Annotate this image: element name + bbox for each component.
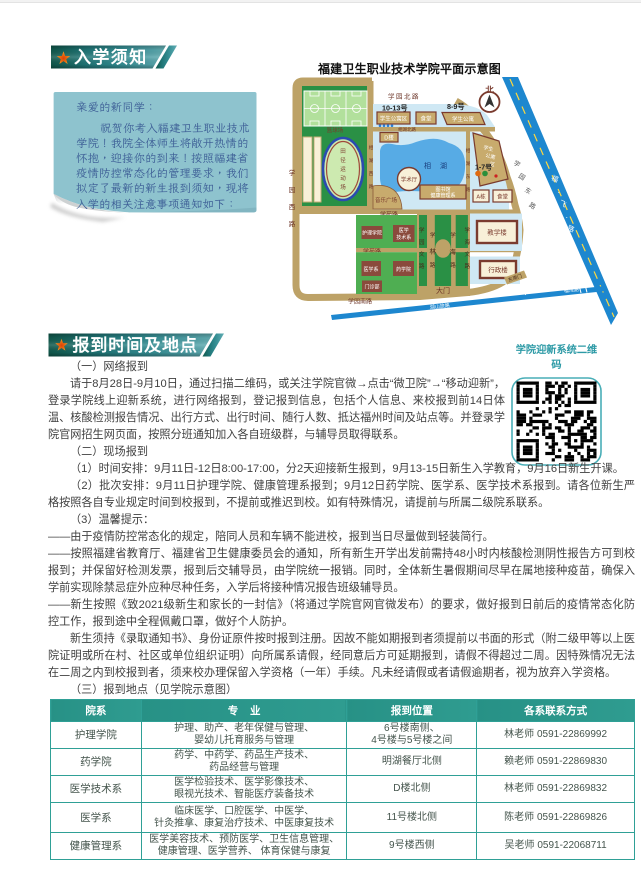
svg-text:报到时间及地点: 报到时间及地点 (73, 335, 198, 355)
svg-text:10-13号: 10-13号 (382, 104, 408, 113)
svg-text:园: 园 (289, 186, 296, 194)
svg-text:东: 东 (466, 173, 471, 179)
svg-text:学: 学 (465, 226, 471, 234)
svg-text:路: 路 (369, 183, 374, 190)
svg-text:音乐广场: 音乐广场 (375, 196, 398, 204)
svg-text:运: 运 (340, 165, 346, 173)
svg-text:路: 路 (527, 200, 538, 211)
svg-text:学生公寓: 学生公寓 (452, 115, 475, 123)
svg-text:学: 学 (512, 158, 523, 169)
svg-text:海: 海 (465, 238, 471, 246)
svg-text:路: 路 (466, 186, 471, 193)
svg-text:篮球场: 篮球场 (327, 126, 344, 134)
svg-text:1-7号: 1-7号 (475, 163, 492, 172)
svg-text:医学: 医学 (399, 227, 409, 234)
svg-text:相: 相 (424, 161, 431, 170)
svg-text:行政楼: 行政楼 (488, 265, 508, 274)
svg-text:路: 路 (430, 261, 436, 269)
svg-text:东: 东 (523, 185, 534, 196)
svg-text:入学须知: 入学须知 (74, 47, 148, 67)
svg-text:学: 学 (289, 168, 296, 177)
svg-text:园: 园 (517, 172, 527, 182)
svg-text:径: 径 (340, 156, 346, 164)
svg-text:D楼: D楼 (384, 134, 394, 142)
svg-text:医学系: 医学系 (363, 266, 378, 273)
svg-text:动: 动 (340, 175, 346, 182)
svg-text:食堂: 食堂 (497, 193, 509, 201)
svg-text:福建卫生职业技术学院平面示意图: 福建卫生职业技术学院平面示意图 (317, 61, 501, 76)
svg-text:学生公寓区: 学生公寓区 (380, 115, 408, 123)
svg-text:学: 学 (430, 231, 436, 239)
svg-text:林: 林 (430, 247, 437, 256)
svg-text:海: 海 (449, 247, 456, 256)
svg-text:A栋: A栋 (476, 193, 486, 201)
svg-text:路: 路 (450, 261, 456, 269)
svg-text:护理学院: 护理学院 (362, 230, 382, 237)
svg-text:文: 文 (419, 250, 425, 258)
svg-text:技术系: 技术系 (396, 234, 411, 241)
svg-text:药学院: 药学院 (396, 266, 411, 273)
svg-text:食堂: 食堂 (420, 115, 432, 123)
svg-text:门诊部: 门诊部 (364, 284, 379, 291)
svg-text:学: 学 (450, 231, 456, 239)
svg-text:学园南路: 学园南路 (348, 298, 372, 306)
svg-text:湖: 湖 (369, 157, 374, 164)
svg-text:大门: 大门 (436, 286, 450, 295)
svg-text:场: 场 (340, 183, 346, 191)
svg-text:路: 路 (465, 262, 471, 270)
svg-text:园: 园 (419, 239, 425, 246)
svg-text:图书馆: 图书馆 (435, 186, 450, 193)
svg-text:学: 学 (419, 226, 425, 234)
svg-text:西: 西 (289, 203, 296, 211)
svg-text:田: 田 (340, 148, 346, 155)
svg-text:文: 文 (465, 250, 471, 258)
svg-text:湖山旅路: 湖山旅路 (429, 302, 450, 311)
svg-text:教学楼: 教学楼 (487, 228, 507, 237)
svg-text:健康管理系: 健康管理系 (430, 192, 455, 199)
svg-text:8-9号: 8-9号 (447, 102, 465, 111)
svg-text:湖: 湖 (440, 161, 447, 170)
svg-text:湖: 湖 (466, 160, 471, 167)
svg-text:相: 相 (466, 147, 471, 154)
svg-text:相: 相 (369, 144, 374, 151)
svg-text:路: 路 (419, 262, 425, 270)
svg-text:路: 路 (289, 219, 296, 228)
svg-text:学术厅: 学术厅 (401, 176, 418, 184)
svg-text:学园北路: 学园北路 (388, 92, 420, 101)
